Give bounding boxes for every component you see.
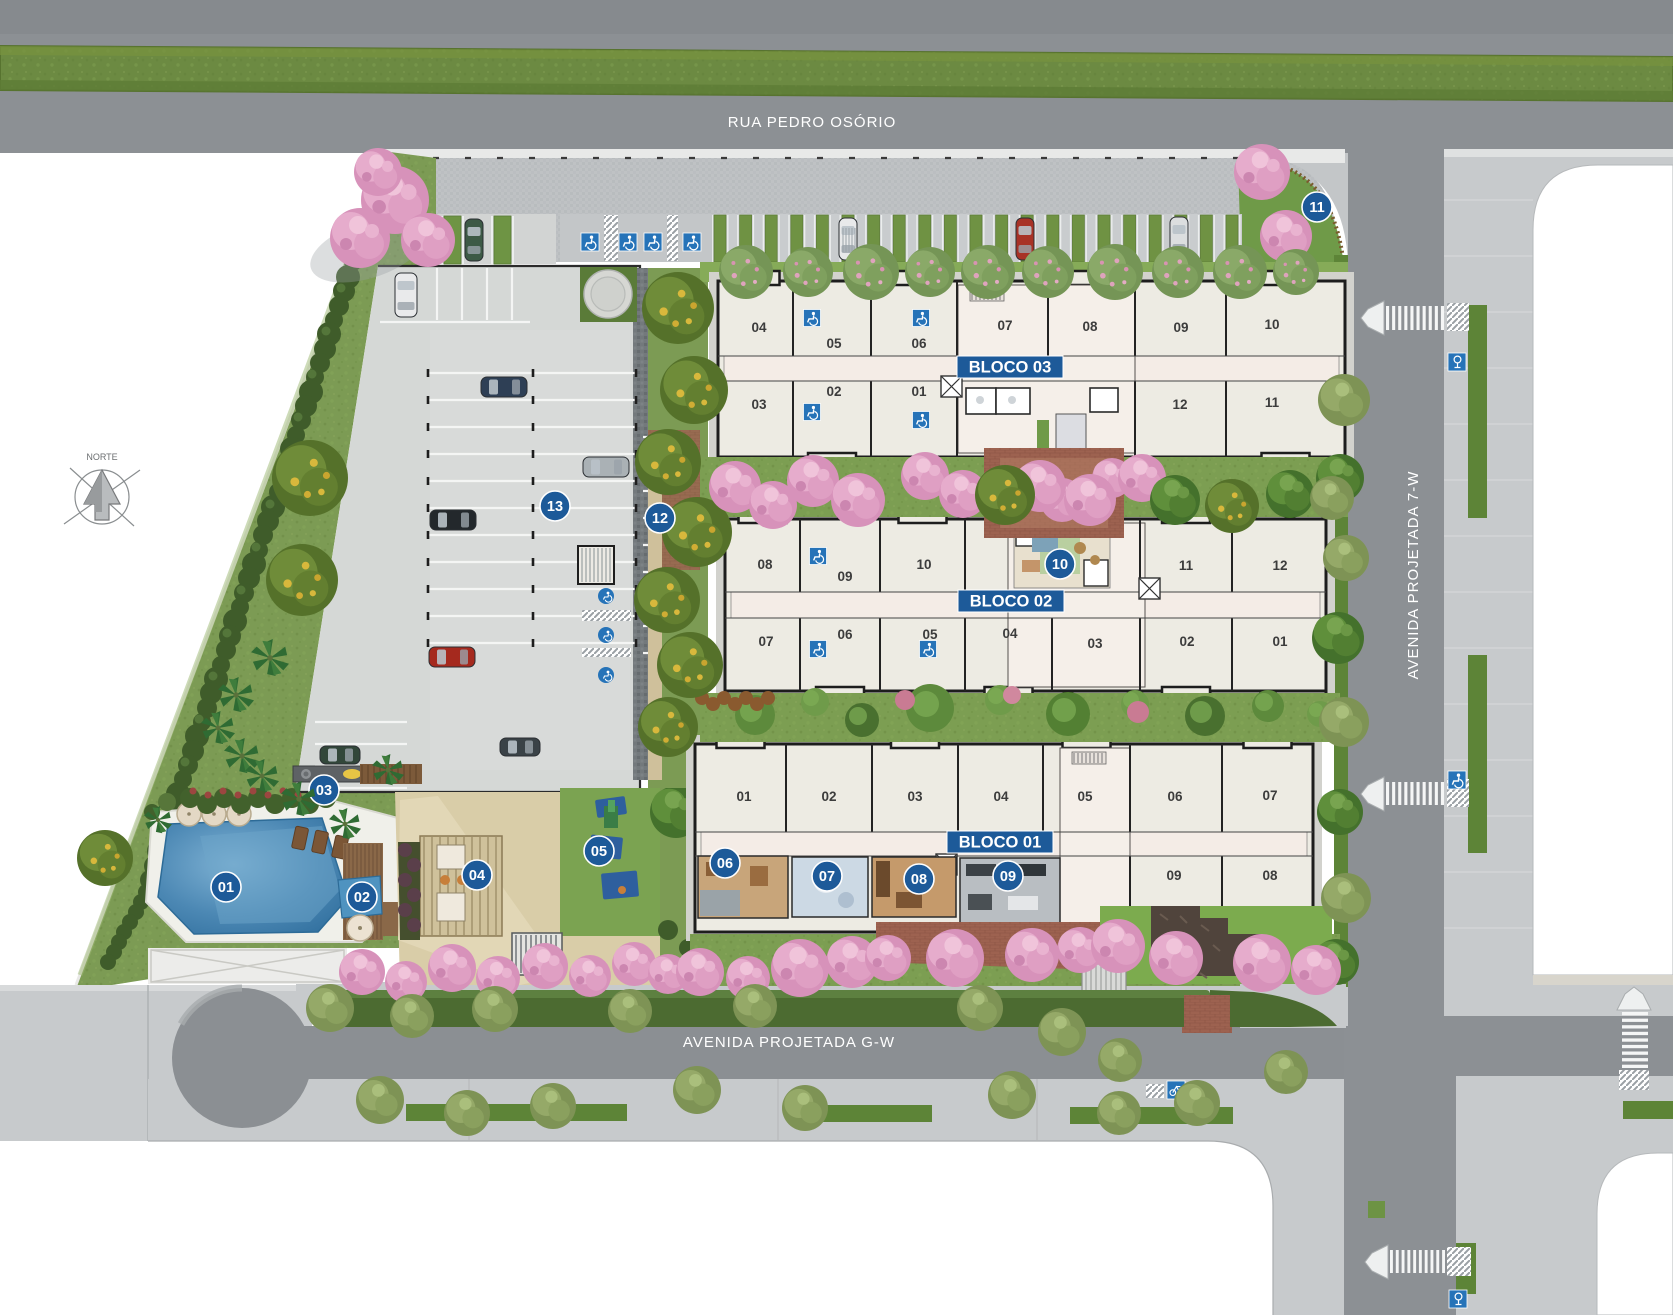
svg-text:06: 06 xyxy=(717,856,733,872)
svg-text:02: 02 xyxy=(821,789,836,804)
svg-text:03: 03 xyxy=(1087,636,1103,651)
svg-text:03: 03 xyxy=(316,783,332,799)
svg-text:01: 01 xyxy=(736,789,752,804)
svg-text:02: 02 xyxy=(1179,634,1194,649)
svg-text:06: 06 xyxy=(1167,789,1183,804)
svg-text:05: 05 xyxy=(826,336,842,351)
svg-text:11: 11 xyxy=(1309,200,1324,216)
svg-text:09: 09 xyxy=(1166,868,1181,883)
svg-text:12: 12 xyxy=(652,511,668,527)
svg-text:BLOCO 03: BLOCO 03 xyxy=(969,359,1052,377)
svg-text:05: 05 xyxy=(1077,789,1093,804)
svg-text:06: 06 xyxy=(837,627,853,642)
svg-text:BLOCO 02: BLOCO 02 xyxy=(970,593,1053,611)
svg-text:10: 10 xyxy=(916,557,931,572)
svg-text:11: 11 xyxy=(1179,558,1194,573)
svg-text:03: 03 xyxy=(751,397,767,412)
svg-text:06: 06 xyxy=(911,336,927,351)
svg-text:07: 07 xyxy=(1262,788,1277,803)
svg-text:09: 09 xyxy=(1173,320,1188,335)
svg-text:10: 10 xyxy=(1264,317,1279,332)
svg-text:13: 13 xyxy=(547,499,563,515)
svg-text:03: 03 xyxy=(907,789,923,804)
svg-text:BLOCO 01: BLOCO 01 xyxy=(959,834,1042,852)
svg-text:12: 12 xyxy=(1272,558,1287,573)
svg-text:07: 07 xyxy=(758,634,773,649)
svg-text:10: 10 xyxy=(1052,557,1068,573)
svg-text:11: 11 xyxy=(1265,395,1280,410)
svg-text:04: 04 xyxy=(751,320,767,335)
svg-text:01: 01 xyxy=(218,880,234,896)
svg-text:08: 08 xyxy=(757,557,773,572)
svg-text:02: 02 xyxy=(354,890,370,906)
svg-text:04: 04 xyxy=(993,789,1009,804)
svg-text:01: 01 xyxy=(911,384,927,399)
svg-text:07: 07 xyxy=(997,318,1012,333)
svg-text:07: 07 xyxy=(819,869,835,885)
svg-text:04: 04 xyxy=(1002,626,1018,641)
svg-text:05: 05 xyxy=(591,844,607,860)
svg-text:NORTE: NORTE xyxy=(86,452,117,462)
svg-text:AVENIDA PROJETADA 7-W: AVENIDA PROJETADA 7-W xyxy=(1405,471,1422,680)
svg-text:AVENIDA PROJETADA G-W: AVENIDA PROJETADA G-W xyxy=(683,1034,895,1051)
svg-text:12: 12 xyxy=(1172,397,1187,412)
svg-text:RUA PEDRO OSÓRIO: RUA PEDRO OSÓRIO xyxy=(728,114,897,131)
svg-text:09: 09 xyxy=(1000,869,1016,885)
svg-text:02: 02 xyxy=(826,384,841,399)
svg-text:09: 09 xyxy=(837,569,852,584)
svg-text:05: 05 xyxy=(922,627,938,642)
svg-text:08: 08 xyxy=(911,872,927,888)
svg-text:08: 08 xyxy=(1082,319,1098,334)
svg-text:01: 01 xyxy=(1272,634,1288,649)
svg-text:08: 08 xyxy=(1262,868,1278,883)
svg-text:04: 04 xyxy=(469,868,485,884)
